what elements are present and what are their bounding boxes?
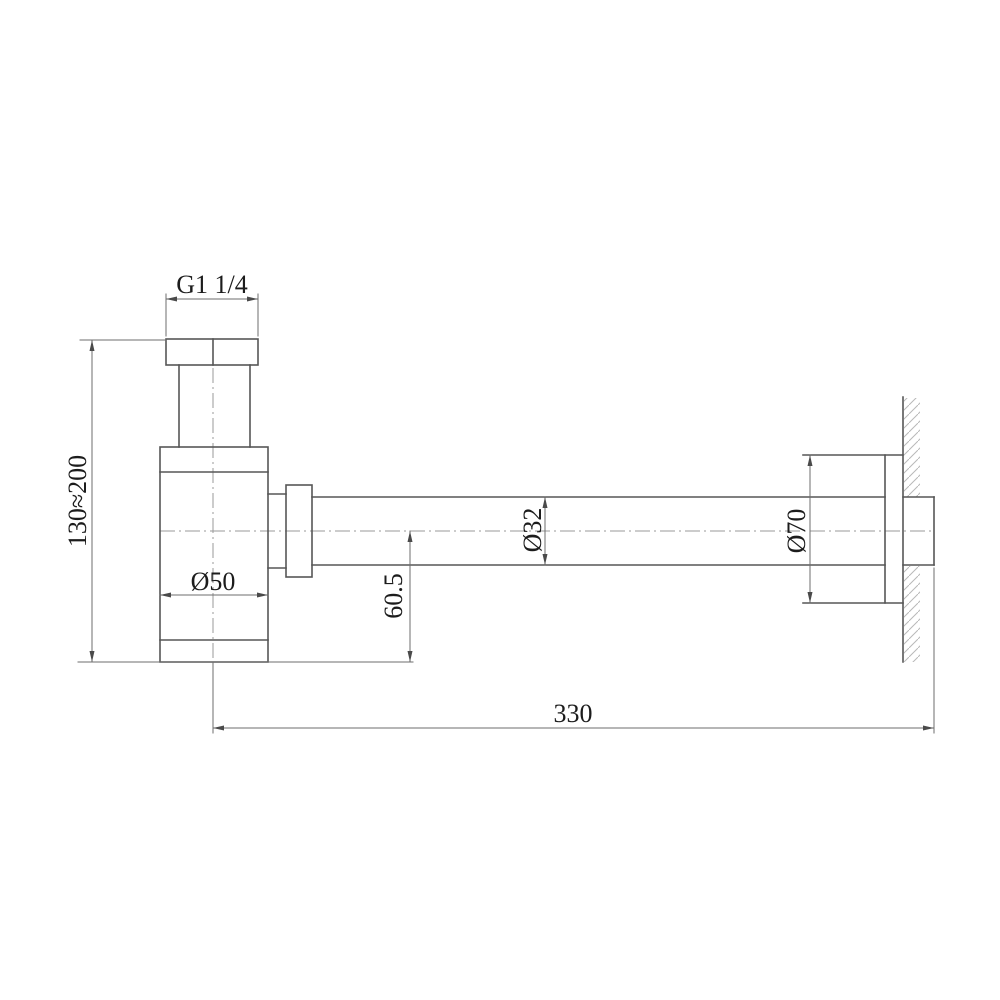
arrowhead-up bbox=[543, 497, 548, 508]
arrowhead-left bbox=[213, 726, 224, 731]
arrowhead-down bbox=[543, 554, 548, 565]
arrowhead-right bbox=[257, 593, 268, 598]
arrowhead-up bbox=[408, 531, 413, 542]
inlet-nut-outline bbox=[166, 339, 258, 365]
dimension-centerline-to-bottom: 60.5 bbox=[379, 531, 413, 662]
drawing-canvas: G1 1/4 130≈200 Ø50 60.5 bbox=[0, 0, 1000, 1000]
wall-hatching-lower bbox=[904, 566, 920, 662]
inlet-nut bbox=[166, 339, 258, 365]
dimension-wall-to-trap: 330 bbox=[213, 568, 934, 733]
pipe-diameter-label: Ø32 bbox=[518, 508, 547, 553]
thread-size-label: G1 1/4 bbox=[176, 270, 248, 299]
arrowhead-down bbox=[90, 651, 95, 662]
wall-to-trap-label: 330 bbox=[554, 699, 593, 728]
centerlines bbox=[160, 368, 934, 660]
wall-hatching-upper bbox=[904, 398, 920, 497]
dimension-pipe-diameter: Ø32 bbox=[518, 497, 548, 565]
arrowhead-left bbox=[160, 593, 171, 598]
arrowhead-down bbox=[408, 651, 413, 662]
wall-flange bbox=[803, 455, 903, 603]
centerline-to-bottom-label: 60.5 bbox=[379, 573, 408, 619]
arrowhead-down bbox=[808, 592, 813, 603]
arrowhead-right bbox=[923, 726, 934, 731]
height-range-label: 130≈200 bbox=[63, 455, 92, 547]
body-diameter-label: Ø50 bbox=[191, 567, 236, 596]
wall-section bbox=[903, 397, 934, 662]
trap-body bbox=[160, 447, 268, 662]
dimension-thread-size: G1 1/4 bbox=[166, 270, 258, 336]
technical-drawing: G1 1/4 130≈200 Ø50 60.5 bbox=[0, 0, 1000, 1000]
arrowhead-up bbox=[808, 455, 813, 466]
trap-body-outline bbox=[160, 447, 268, 662]
arrowhead-right bbox=[247, 297, 258, 302]
dimension-flange-diameter: Ø70 bbox=[782, 455, 813, 603]
inlet-tube bbox=[179, 365, 250, 447]
dimension-height-range: 130≈200 bbox=[63, 340, 413, 662]
dimension-body-diameter: Ø50 bbox=[160, 567, 268, 598]
arrowhead-up bbox=[90, 340, 95, 351]
flange-diameter-label: Ø70 bbox=[782, 509, 811, 554]
